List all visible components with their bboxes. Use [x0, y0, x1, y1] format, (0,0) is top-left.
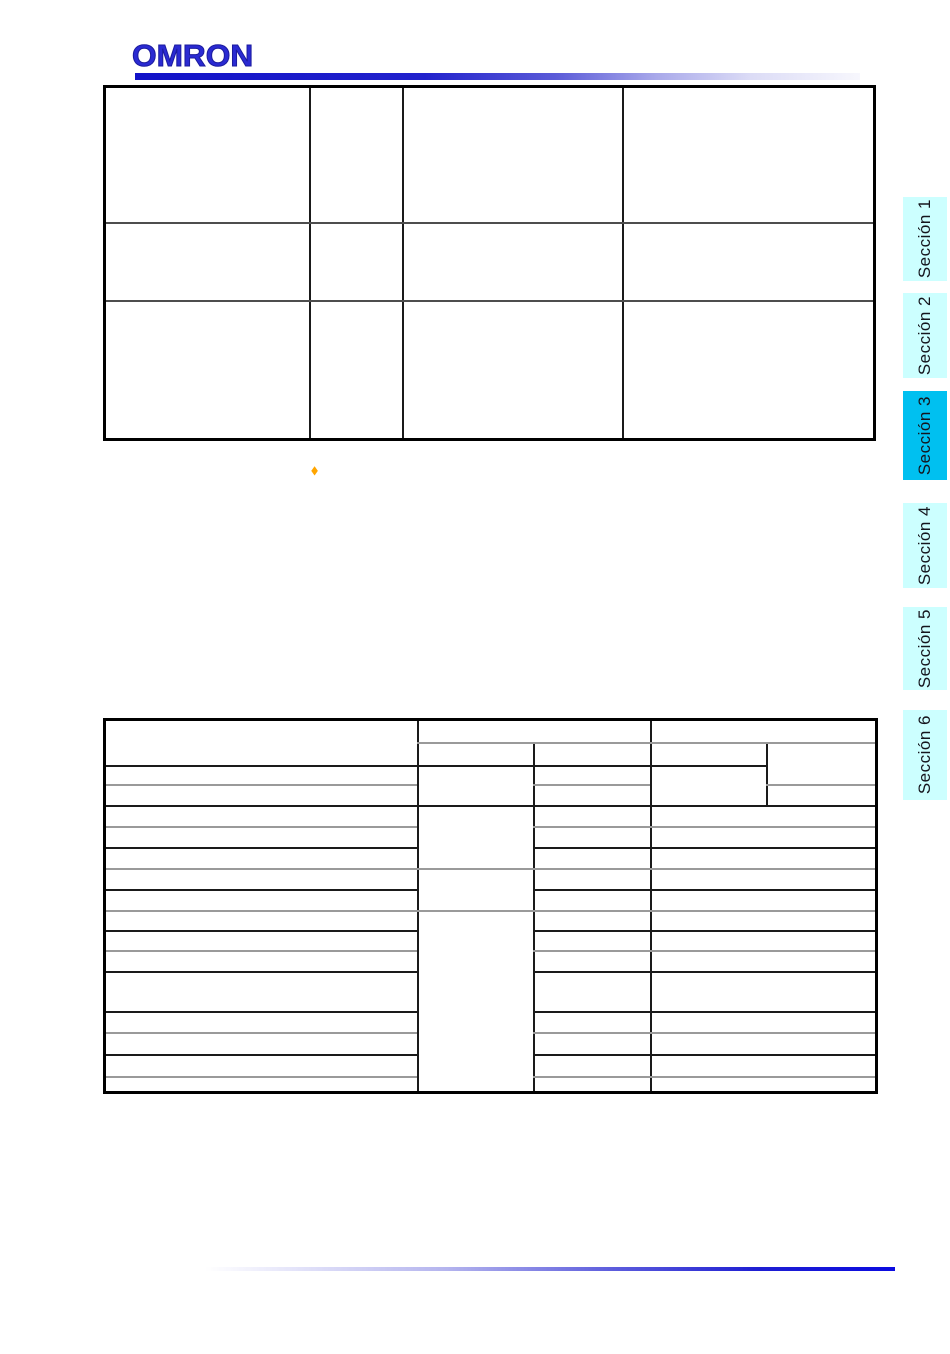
- grid-line: [106, 950, 417, 952]
- section-tab-label: Sección 4: [915, 506, 935, 585]
- diamond-bullet-icon: ◆: [311, 464, 318, 476]
- section-tab-label: Sección 2: [915, 296, 935, 375]
- grid-line: [106, 222, 873, 224]
- omron-logo: OMRON: [132, 42, 254, 72]
- section-tab-1[interactable]: Sección 1: [903, 197, 947, 281]
- grid-line: [106, 1076, 417, 1078]
- grid-line: [533, 889, 875, 891]
- top-table: [103, 85, 876, 441]
- grid-line: [106, 971, 417, 973]
- grid-line: [533, 950, 875, 952]
- footer-gradient-rule: [205, 1267, 895, 1271]
- grid-line: [766, 742, 768, 807]
- grid-line: [533, 784, 650, 786]
- grid-line: [309, 88, 311, 438]
- grid-line: [533, 971, 875, 973]
- section-tab-3-active[interactable]: Sección 3: [903, 391, 947, 480]
- grid-line: [533, 1032, 875, 1034]
- section-tab-4[interactable]: Sección 4: [903, 503, 947, 588]
- grid-line: [533, 1011, 875, 1013]
- grid-line: [106, 910, 875, 912]
- bottom-table: [103, 718, 878, 1094]
- grid-line: [533, 847, 875, 849]
- section-tab-2[interactable]: Sección 2: [903, 293, 947, 378]
- section-tab-label: Sección 6: [915, 715, 935, 794]
- grid-line: [106, 930, 417, 932]
- grid-line: [533, 1076, 875, 1078]
- grid-line: [622, 88, 624, 438]
- grid-line: [766, 784, 875, 786]
- section-tab-label: Sección 3: [915, 396, 935, 475]
- grid-line: [106, 847, 417, 849]
- grid-line: [533, 930, 875, 932]
- grid-line: [533, 742, 535, 1091]
- grid-line: [106, 1054, 417, 1056]
- grid-line: [106, 868, 875, 870]
- grid-line: [106, 784, 417, 786]
- grid-line: [106, 826, 417, 828]
- section-tab-5[interactable]: Sección 5: [903, 607, 947, 690]
- grid-line: [417, 721, 419, 1091]
- grid-line: [106, 300, 873, 302]
- grid-line: [106, 805, 875, 807]
- grid-line: [106, 1011, 417, 1013]
- grid-line: [106, 1032, 417, 1034]
- grid-line: [533, 826, 875, 828]
- grid-line: [533, 1054, 875, 1056]
- header-gradient-rule: [135, 73, 860, 80]
- section-tab-6[interactable]: Sección 6: [903, 710, 947, 800]
- grid-line: [402, 88, 404, 438]
- section-tab-label: Sección 5: [915, 609, 935, 688]
- grid-line: [650, 721, 652, 1091]
- grid-line: [106, 765, 766, 767]
- section-tab-label: Sección 1: [915, 199, 935, 278]
- grid-line: [417, 742, 875, 744]
- grid-line: [106, 889, 417, 891]
